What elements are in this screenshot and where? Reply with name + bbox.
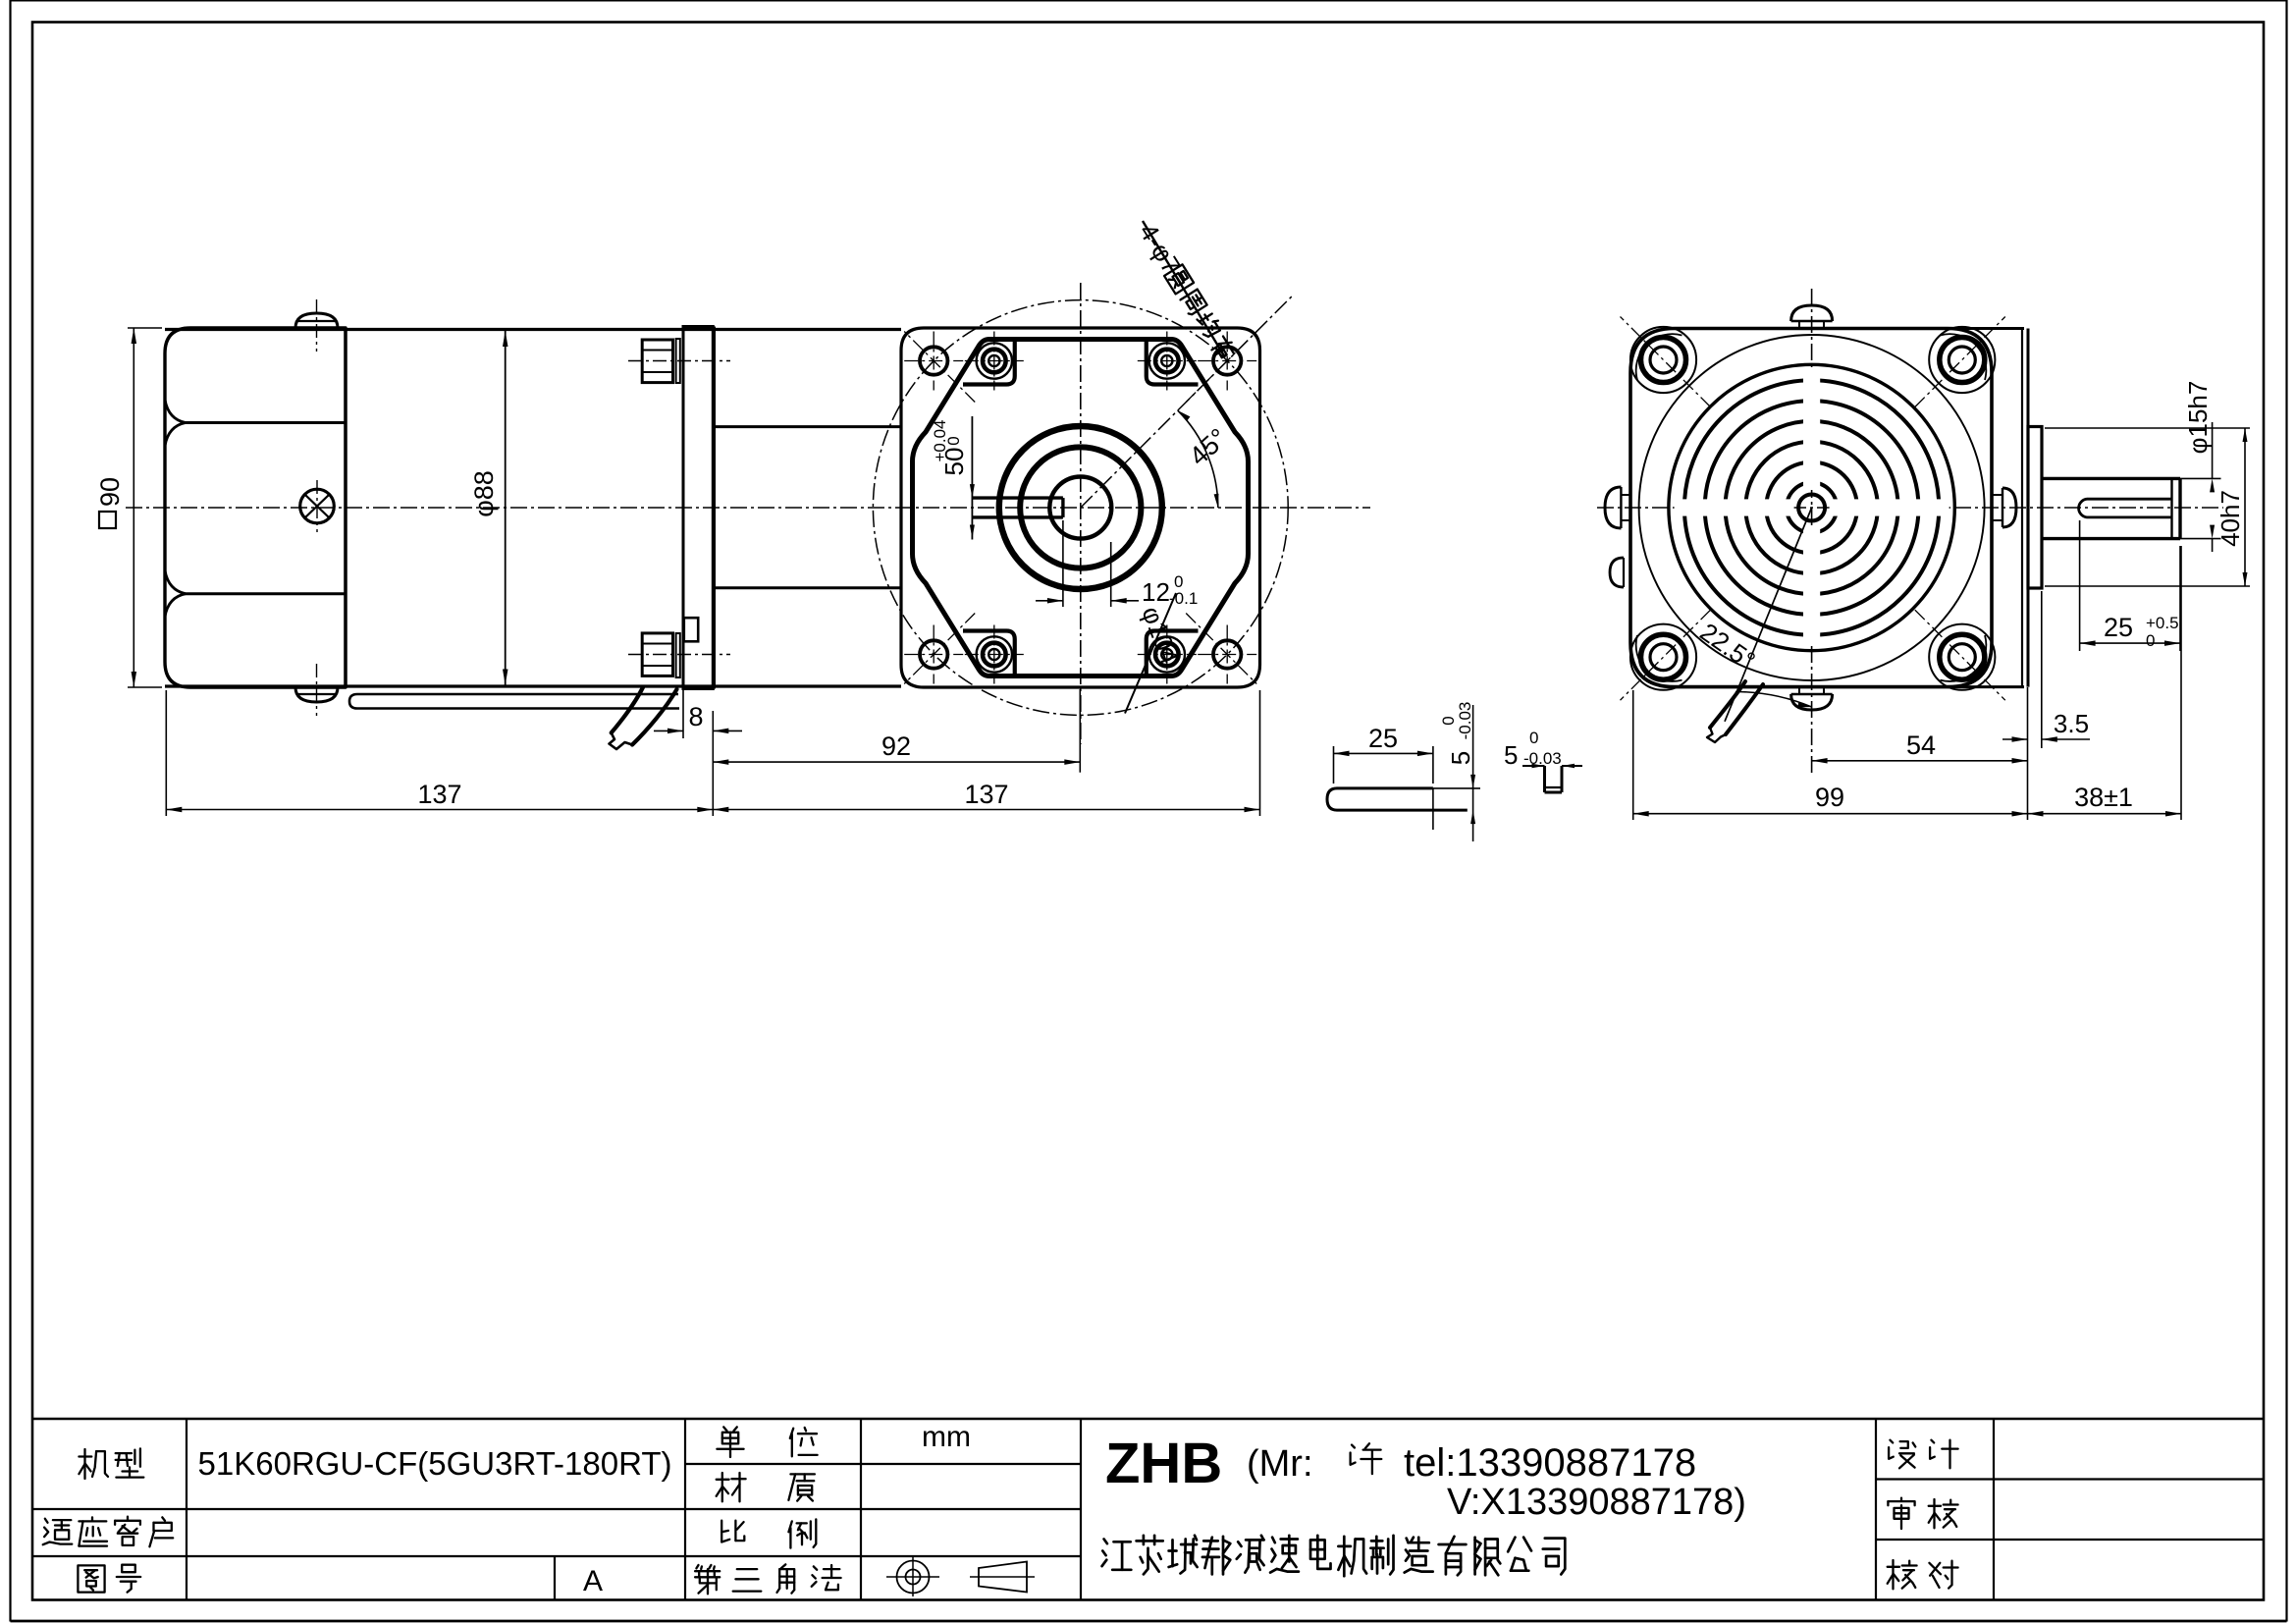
svg-text:25: 25 [1368, 724, 1398, 753]
svg-text:90: 90 [95, 477, 125, 507]
svg-text:tel:13390887178: tel:13390887178 [1404, 1441, 1696, 1485]
svg-text:99: 99 [1815, 783, 1844, 812]
svg-text:54: 54 [1906, 730, 1936, 760]
svg-text:40h7: 40h7 [2216, 490, 2245, 547]
svg-text:92: 92 [881, 731, 911, 761]
svg-text:137: 137 [964, 780, 1008, 809]
svg-text:0: 0 [1529, 729, 1538, 747]
svg-text:137: 137 [417, 780, 461, 809]
svg-text:ZHB: ZHB [1105, 1432, 1222, 1495]
svg-text:-0.03: -0.03 [1456, 702, 1474, 740]
svg-text:mm: mm [922, 1421, 971, 1453]
svg-text:51K60RGU-CF(5GU3RT-180RT): 51K60RGU-CF(5GU3RT-180RT) [198, 1445, 672, 1482]
svg-text:12: 12 [1142, 577, 1170, 607]
svg-text:5: 5 [1504, 740, 1518, 770]
svg-text:+0.5: +0.5 [2146, 614, 2179, 632]
svg-text:25: 25 [2104, 613, 2133, 642]
svg-text:φ88: φ88 [469, 470, 499, 517]
svg-text:-0.03: -0.03 [1523, 749, 1562, 768]
svg-text:A: A [583, 1565, 603, 1597]
svg-text:V:X13390887178): V:X13390887178) [1447, 1482, 1746, 1523]
svg-text:5: 5 [1446, 751, 1475, 765]
svg-text:38±1: 38±1 [2074, 783, 2133, 812]
svg-text:(Mr:: (Mr: [1247, 1443, 1313, 1485]
svg-text:φ15h7: φ15h7 [2183, 381, 2213, 455]
svg-text:8: 8 [688, 702, 703, 731]
svg-text:0: 0 [944, 436, 963, 445]
svg-text:3.5: 3.5 [2054, 709, 2089, 738]
svg-text:0: 0 [2146, 631, 2155, 650]
